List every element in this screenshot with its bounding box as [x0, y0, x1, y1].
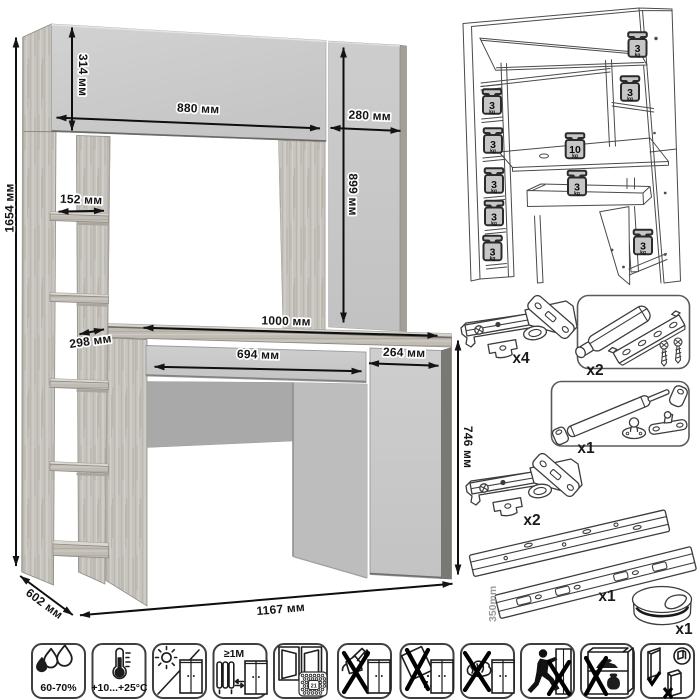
svg-text:694 мм: 694 мм: [237, 347, 280, 362]
svg-text:+10...+25°C: +10...+25°C: [91, 682, 148, 694]
svg-text:899 мм: 899 мм: [346, 173, 360, 215]
svg-text:x1: x1: [675, 621, 693, 638]
svg-text:x1: x1: [598, 588, 616, 605]
svg-text:x1: x1: [577, 440, 595, 457]
svg-text:21: 21: [311, 684, 317, 690]
svg-text:60-70%: 60-70%: [40, 682, 77, 694]
svg-text:880 мм: 880 мм: [177, 101, 220, 117]
svg-text:1000 мм: 1000 мм: [261, 313, 311, 328]
svg-text:152 мм: 152 мм: [60, 192, 103, 207]
svg-text:x4: x4: [512, 350, 530, 367]
svg-text:746 мм: 746 мм: [461, 426, 475, 468]
svg-text:264 мм: 264 мм: [383, 345, 426, 360]
svg-text:1654 мм: 1654 мм: [3, 183, 17, 232]
svg-text:x2: x2: [586, 362, 603, 379]
svg-text:x2: x2: [523, 512, 540, 529]
svg-text:1167 мм: 1167 мм: [256, 600, 306, 618]
svg-text:280 мм: 280 мм: [348, 108, 391, 124]
svg-text:314 мм: 314 мм: [76, 54, 90, 96]
svg-text:≥1M: ≥1M: [224, 648, 245, 660]
svg-text:350mm: 350mm: [487, 586, 499, 622]
